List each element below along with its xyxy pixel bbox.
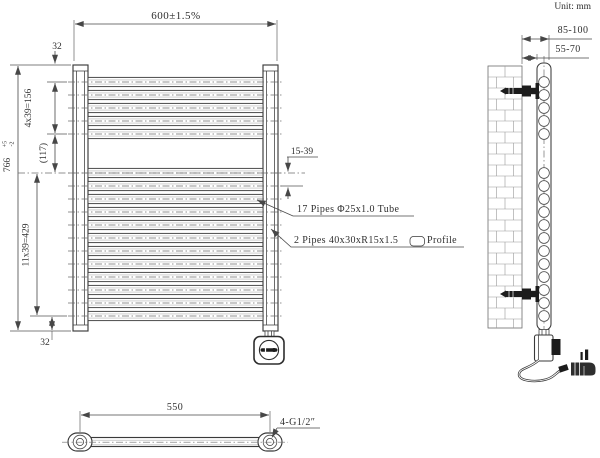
heating-element	[535, 330, 561, 362]
unit-label: Unit: mm	[554, 2, 591, 12]
wall	[488, 66, 522, 328]
side-view: Unit: mm	[488, 2, 596, 381]
front-pipes	[68, 77, 283, 320]
note-thread-label: 4-G1/2″	[280, 417, 315, 428]
dim-top-offset-label: 32	[52, 42, 62, 52]
side-rail	[537, 56, 551, 337]
power-plug-icon	[571, 350, 596, 376]
dim-top-group-label: 4x39=156	[24, 88, 34, 127]
power-cable	[519, 360, 569, 381]
radiator-technical-drawing: 600±1.5% 32 4x39=156 (117) 766 +5 -2 11x…	[0, 0, 600, 458]
note-tubes-label: 17 Pipes Φ25x1.0 Tube	[297, 204, 400, 215]
left-rail	[73, 65, 88, 331]
dim-pipe-spacing-label: 15-39	[291, 147, 313, 157]
dim-bottom-offset-label: 32	[40, 338, 50, 348]
dim-wall-outer-label: 85-100	[558, 25, 589, 36]
dim-span-label: 550	[167, 402, 183, 413]
right-rail	[263, 65, 278, 331]
dim-width-label: 600±1.5%	[151, 10, 200, 22]
dim-height-tol-plus: +5	[3, 141, 9, 147]
dim-height-tol-minus: -2	[10, 142, 16, 147]
bottom-view: 550 4-G1/2″	[62, 402, 320, 451]
dim-wall-inner-label: 55-70	[555, 44, 580, 55]
front-view: 600±1.5% 32 4x39=156 (117) 766 +5 -2 11x…	[3, 10, 465, 364]
bottom-bar	[62, 433, 288, 451]
dim-bottom-group-label: 11x39=429	[22, 223, 32, 266]
profile-icon	[410, 237, 425, 247]
dim-gap-label: (117)	[38, 143, 49, 163]
drawing-svg: 600±1.5% 32 4x39=156 (117) 766 +5 -2 11x…	[0, 0, 600, 458]
dim-height-label: 766	[3, 158, 13, 173]
thermostat-control	[254, 331, 284, 364]
note-profile-suffix-label: Profile	[427, 235, 457, 246]
note-profile-label: 2 Pipes 40x30xR15x1.5	[294, 235, 398, 246]
